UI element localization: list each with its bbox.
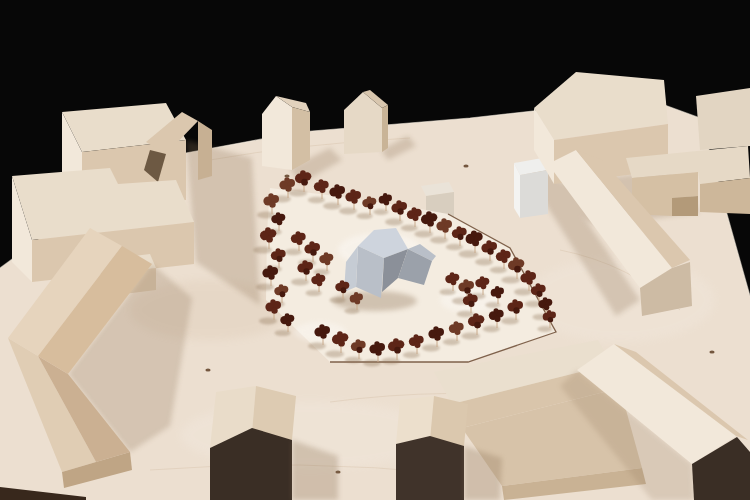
knot (709, 350, 714, 353)
knot (463, 164, 468, 167)
knot (205, 368, 210, 371)
knot (284, 174, 289, 177)
model-photo (0, 0, 750, 500)
house-top-center-left (262, 96, 310, 170)
white-model-box-2 (514, 158, 548, 218)
